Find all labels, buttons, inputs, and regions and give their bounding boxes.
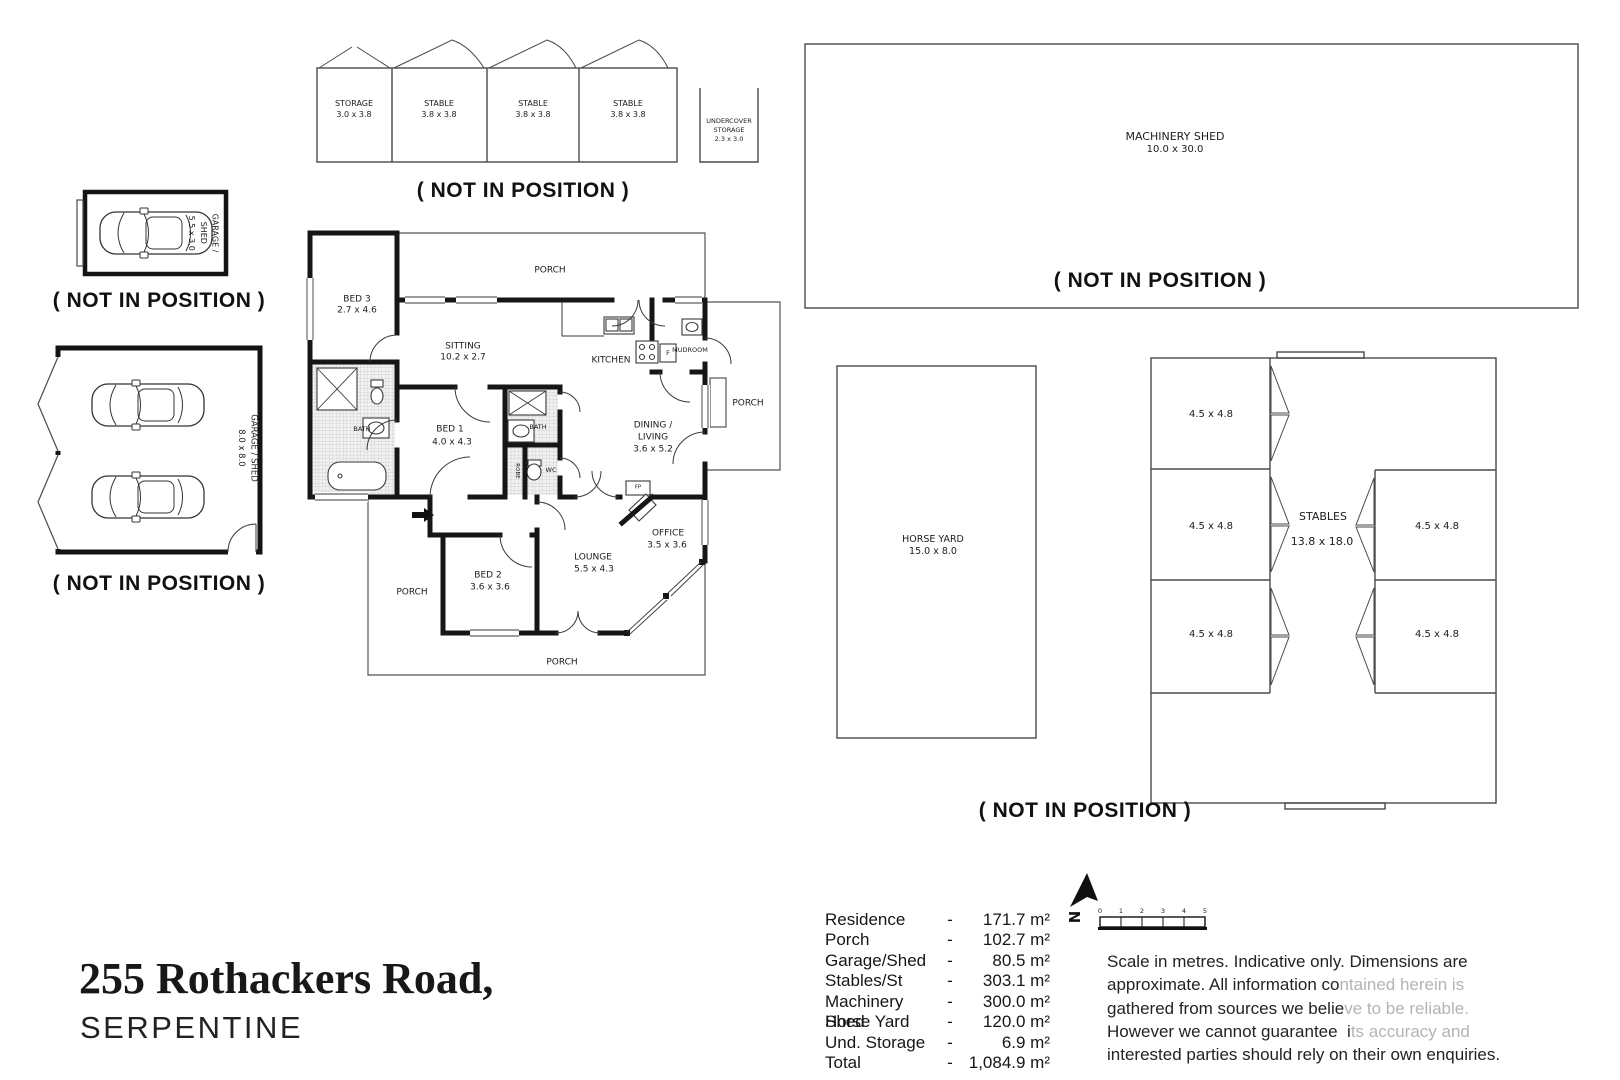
stable-cell-label: STABLE xyxy=(518,99,548,109)
house-bay-window xyxy=(624,559,705,636)
room-label-bed3: BED 3 xyxy=(343,294,370,305)
not-in-position-note: ( NOT IN POSITION ) xyxy=(417,179,630,203)
disclaimer-line: Scale in metres. Indicative only. Dimens… xyxy=(1107,952,1468,972)
car-icon xyxy=(92,380,204,430)
machinery-shed-dims: 10.0 x 30.0 xyxy=(1147,144,1204,157)
scale-tick: 4 xyxy=(1182,907,1186,915)
room-label-sitting: SITTING xyxy=(445,341,481,352)
garage-large-label: GARAGE / SHED 8.0 x 8.0 xyxy=(235,414,260,482)
room-label-bed2: BED 2 xyxy=(474,570,501,581)
room-label-mudroom: MUDROOM xyxy=(672,346,708,354)
disclaimer-line: approximate. All information contained h… xyxy=(1107,975,1464,995)
room-label-kitchen: KITCHEN xyxy=(592,355,631,366)
room-label-office: OFFICE xyxy=(652,528,684,539)
horse-yard-label: HORSE YARD xyxy=(902,534,964,546)
not-in-position-note: ( NOT IN POSITION ) xyxy=(53,289,266,313)
stables-dims: 13.8 x 18.0 xyxy=(1291,535,1354,549)
disclaimer-line: gathered from sources we believe to be r… xyxy=(1107,999,1469,1019)
porch-label: PORCH xyxy=(534,265,565,276)
room-label-living: LIVING xyxy=(638,432,668,443)
not-in-position-note: ( NOT IN POSITION ) xyxy=(1054,269,1267,293)
scale-tick: 5 xyxy=(1203,907,1207,915)
garage-large-opening xyxy=(54,357,62,451)
floorplan-linework xyxy=(0,0,1620,1080)
disclaimer-line: However we cannot guarantee its accuracy… xyxy=(1107,1022,1470,1042)
room-dims-bed3: 2.7 x 4.6 xyxy=(337,305,377,316)
room-dims-sitting: 10.2 x 2.7 xyxy=(440,352,485,363)
area-value: 171.7 m² xyxy=(958,910,1050,930)
stable-cell-label: STABLE xyxy=(613,99,643,109)
garage-large-outline xyxy=(58,348,260,552)
undercover-label: STORAGE xyxy=(714,126,745,134)
stables-label: STABLES xyxy=(1299,510,1347,524)
scale-tick: 3 xyxy=(1161,907,1165,915)
property-suburb: SERPENTINE xyxy=(80,1010,303,1046)
undercover-label: UNDERCOVER xyxy=(706,117,752,125)
machinery-shed-label: MACHINERY SHED xyxy=(1125,130,1224,144)
porch-label: PORCH xyxy=(732,398,763,409)
disclaimer-line: interested parties should rely on their … xyxy=(1107,1045,1500,1065)
area-row: Total - 1,084.9 m² xyxy=(825,1053,1050,1073)
garage-small-door xyxy=(77,200,83,266)
stall-dims: 4.5 x 4.8 xyxy=(1189,521,1233,534)
room-dims-lounge: 5.5 x 4.3 xyxy=(574,564,614,575)
not-in-position-note: ( NOT IN POSITION ) xyxy=(979,799,1192,823)
area-row: Und. Storage - 6.9 m² xyxy=(825,1033,1050,1053)
not-in-position-note: ( NOT IN POSITION ) xyxy=(53,572,266,596)
stall-dims: 4.5 x 4.8 xyxy=(1189,629,1233,642)
bath-label: BATH xyxy=(353,425,370,433)
wc-label: WC xyxy=(546,466,557,474)
bath-label: BATH xyxy=(529,423,546,431)
room-dims-bed1: 4.0 x 4.3 xyxy=(432,437,472,448)
fireplace-label: FP xyxy=(635,485,641,492)
stable-cell-dims: 3.8 x 3.8 xyxy=(610,110,645,120)
stable-cell-dims: 3.8 x 3.8 xyxy=(515,110,550,120)
room-dims-dining: 3.6 x 5.2 xyxy=(633,444,673,455)
stable-cell-label: STABLE xyxy=(424,99,454,109)
area-separator: - xyxy=(942,910,958,930)
scale-tick: 1 xyxy=(1119,907,1123,915)
horse-yard-dims: 15.0 x 8.0 xyxy=(909,546,957,558)
garage-small-label: GARAGE / SHED 5.5 x 3.0 xyxy=(186,214,221,253)
porch-label: PORCH xyxy=(546,657,577,668)
stable-cell-label: STORAGE xyxy=(335,99,373,109)
room-label-bed1: BED 1 xyxy=(436,424,463,435)
stall-dims: 4.5 x 4.8 xyxy=(1415,521,1459,534)
room-label-lounge: LOUNGE xyxy=(574,552,612,563)
car-icon xyxy=(92,472,204,522)
north-arrow-icon xyxy=(1070,873,1098,907)
scale-bar xyxy=(1098,917,1207,929)
north-label: N xyxy=(1066,911,1084,924)
area-row: Horse Yard - 120.0 m² xyxy=(825,1012,1050,1032)
area-row: Porch - 102.7 m² xyxy=(825,930,1050,950)
room-dims-office: 3.5 x 3.6 xyxy=(647,540,687,551)
area-label: Residence xyxy=(825,910,942,930)
floorplan-page: STORAGE 3.0 x 3.8 STABLE 3.8 x 3.8 STABL… xyxy=(0,0,1620,1080)
stables-door-wedges xyxy=(1271,366,1374,685)
area-row: Stables/St - 303.1 m² xyxy=(825,971,1050,991)
property-address: 255 Rothackers Road, xyxy=(79,953,493,1004)
undercover-dims: 2.3 x 3.0 xyxy=(715,135,744,143)
stable-cell-dims: 3.8 x 3.8 xyxy=(421,110,456,120)
area-row: Garage/Shed - 80.5 m² xyxy=(825,951,1050,971)
scale-tick: 0 xyxy=(1098,907,1102,915)
stall-dims: 4.5 x 4.8 xyxy=(1415,629,1459,642)
robe-label: ROBE xyxy=(512,463,520,478)
room-dims-bed2: 3.6 x 3.6 xyxy=(470,582,510,593)
area-row: Residence - 171.7 m² xyxy=(825,910,1050,930)
porch-label: PORCH xyxy=(396,587,427,598)
stall-dims: 4.5 x 4.8 xyxy=(1189,409,1233,422)
fridge-label: F xyxy=(666,349,670,357)
stable-cell-dims: 3.0 x 3.8 xyxy=(336,110,371,120)
scale-tick: 2 xyxy=(1140,907,1144,915)
room-label-dining: DINING / xyxy=(634,420,673,431)
